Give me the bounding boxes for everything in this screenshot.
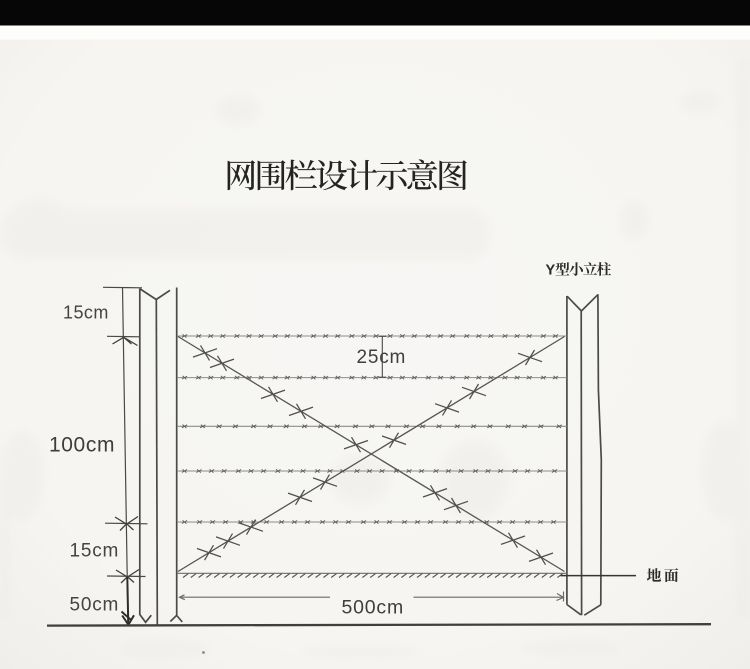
svg-text:15cm: 15cm [63,303,109,323]
svg-text:50cm: 50cm [70,595,120,616]
svg-text:500cm: 500cm [342,597,405,619]
svg-text:15cm: 15cm [70,541,120,562]
svg-text:25cm: 25cm [357,347,407,368]
svg-text:100cm: 100cm [49,434,115,457]
